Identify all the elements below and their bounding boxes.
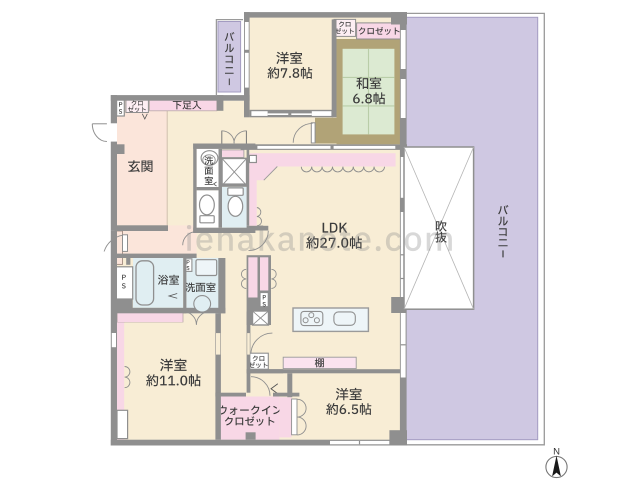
svg-text:N: N xyxy=(553,447,560,458)
